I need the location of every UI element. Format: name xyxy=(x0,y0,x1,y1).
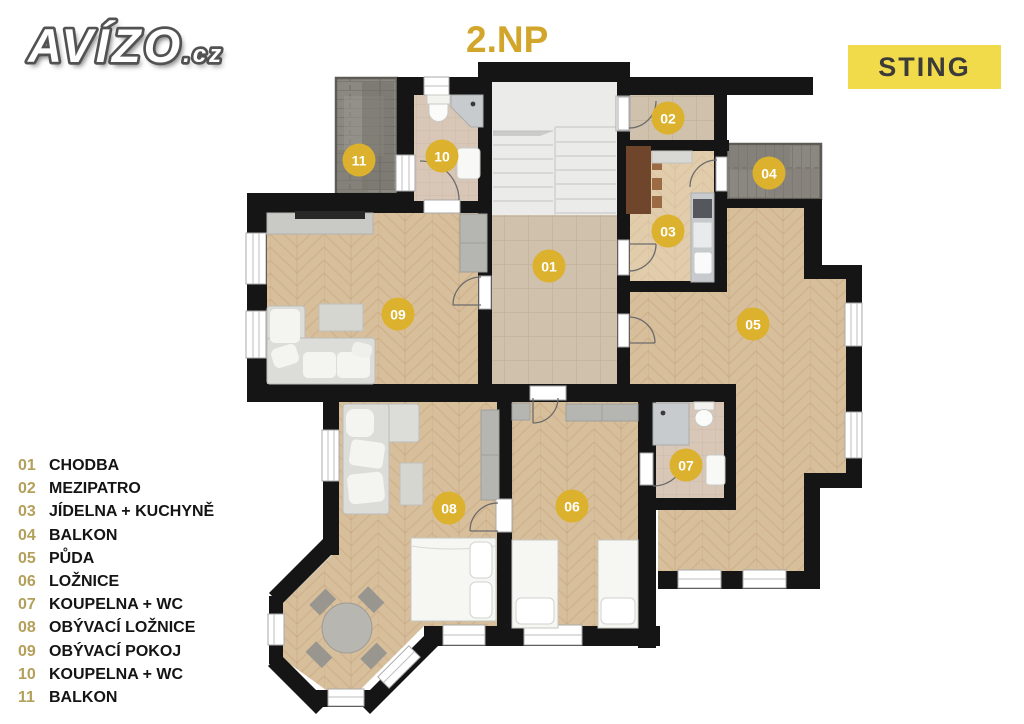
svg-text:09: 09 xyxy=(390,307,406,323)
svg-text:AVÍZO.cz: AVÍZO.cz xyxy=(27,19,224,72)
svg-text:08: 08 xyxy=(441,501,457,517)
svg-text:02: 02 xyxy=(660,111,676,127)
svg-text:04: 04 xyxy=(761,166,777,182)
svg-text:07: 07 xyxy=(678,458,694,474)
svg-text:11: 11 xyxy=(352,153,367,169)
svg-text:03: 03 xyxy=(660,224,676,240)
svg-text:01: 01 xyxy=(541,259,557,275)
svg-text:06: 06 xyxy=(564,499,580,515)
svg-text:05: 05 xyxy=(745,317,761,333)
svg-text:10: 10 xyxy=(434,149,450,165)
